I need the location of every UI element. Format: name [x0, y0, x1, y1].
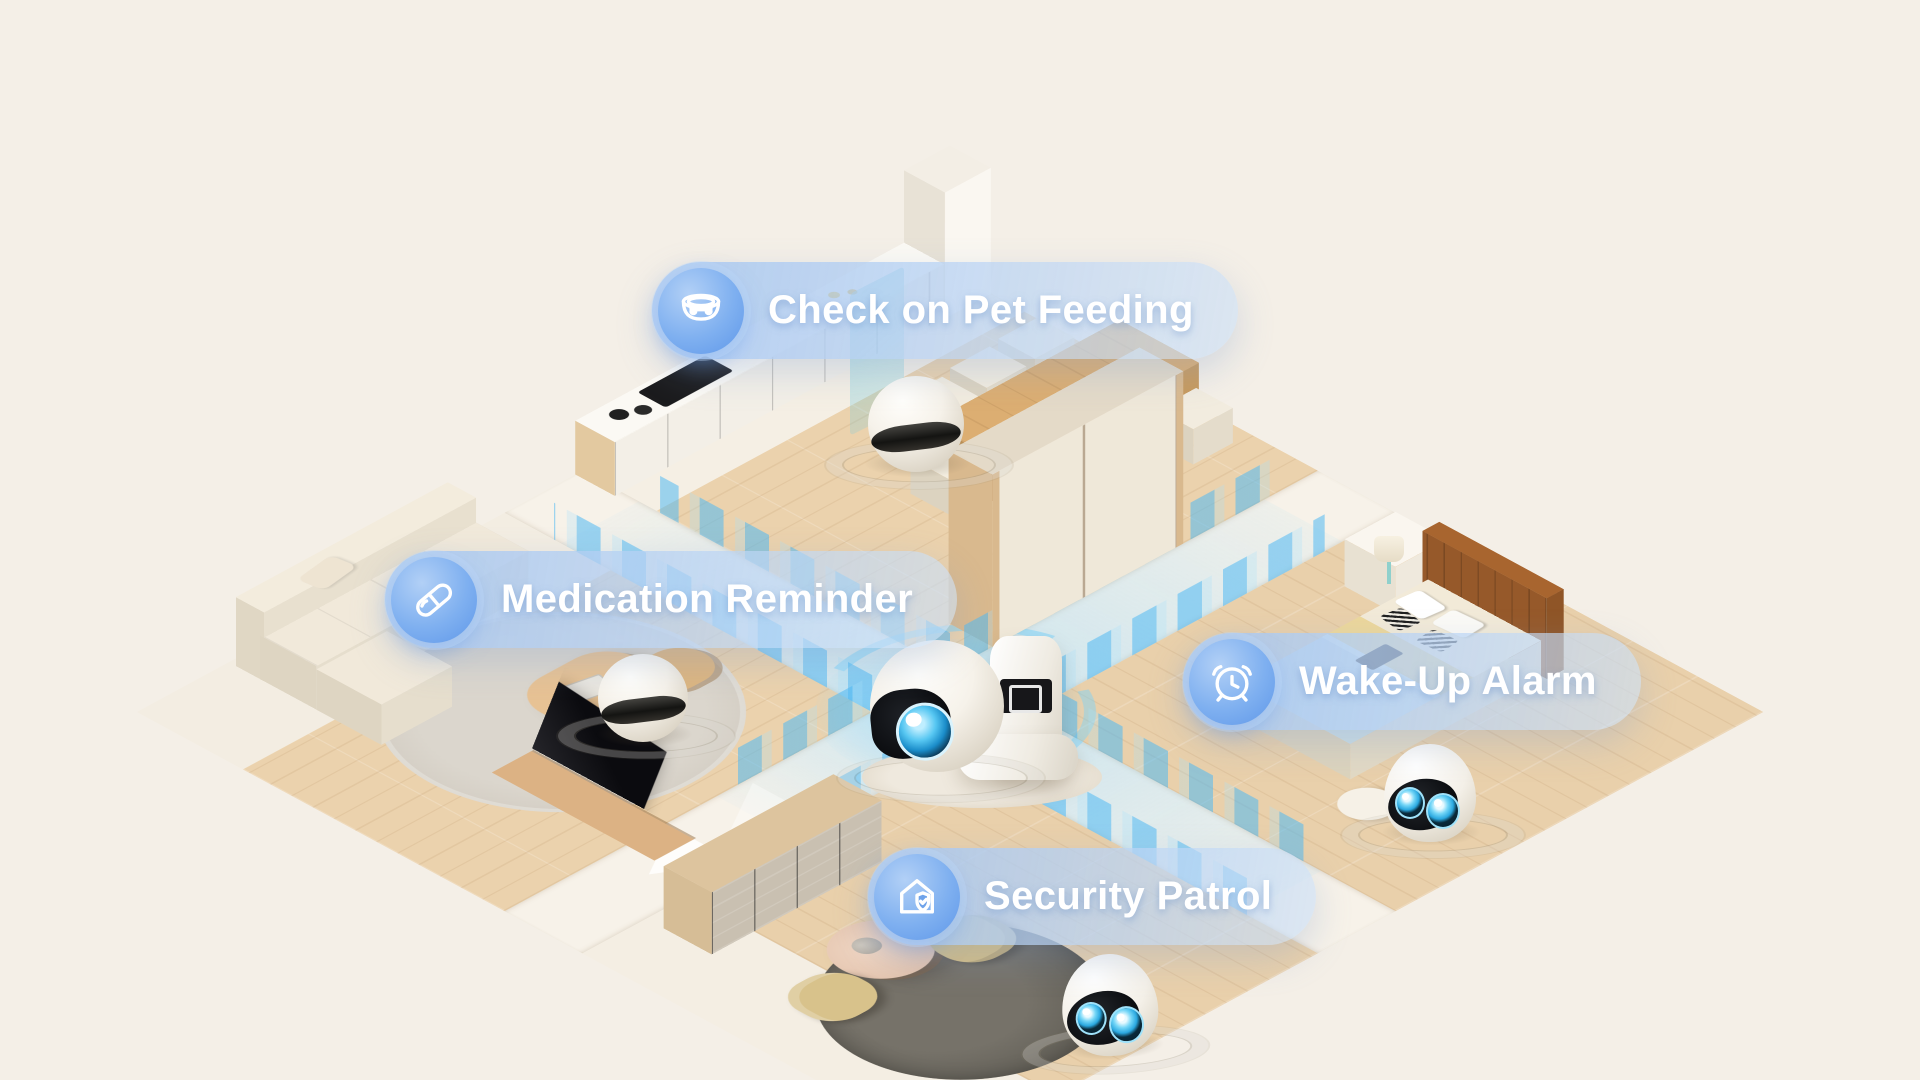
patrol-robot [1059, 952, 1160, 1059]
callout-pet-feeding: Check on Pet Feeding [652, 262, 1238, 359]
callout-medication: Medication Reminder [385, 551, 957, 648]
callout-label: Wake-Up Alarm [1299, 659, 1597, 704]
living-room-robot [598, 654, 688, 742]
callout-label: Check on Pet Feeding [768, 288, 1194, 333]
scene-canvas: Check on Pet Feeding Medication Reminder [0, 0, 1920, 1080]
hub-robot-camera-eye [894, 700, 958, 764]
home-shield-icon [874, 854, 960, 940]
bedroom-robot [1384, 744, 1476, 842]
robot-eye [1395, 787, 1425, 819]
hub-robot-body [870, 640, 1004, 772]
pill-icon [391, 557, 477, 643]
alarm-clock-icon [1189, 639, 1275, 725]
dining-robot [868, 376, 964, 472]
callout-label: Security Patrol [984, 874, 1272, 919]
callout-security-patrol: Security Patrol [868, 848, 1316, 945]
callout-wake-up-alarm: Wake-Up Alarm [1183, 633, 1641, 730]
pet-bowl-icon [658, 268, 744, 354]
hub-robot-with-dock [862, 628, 1112, 808]
hub-robot-face [868, 685, 955, 762]
callout-label: Medication Reminder [501, 577, 913, 622]
